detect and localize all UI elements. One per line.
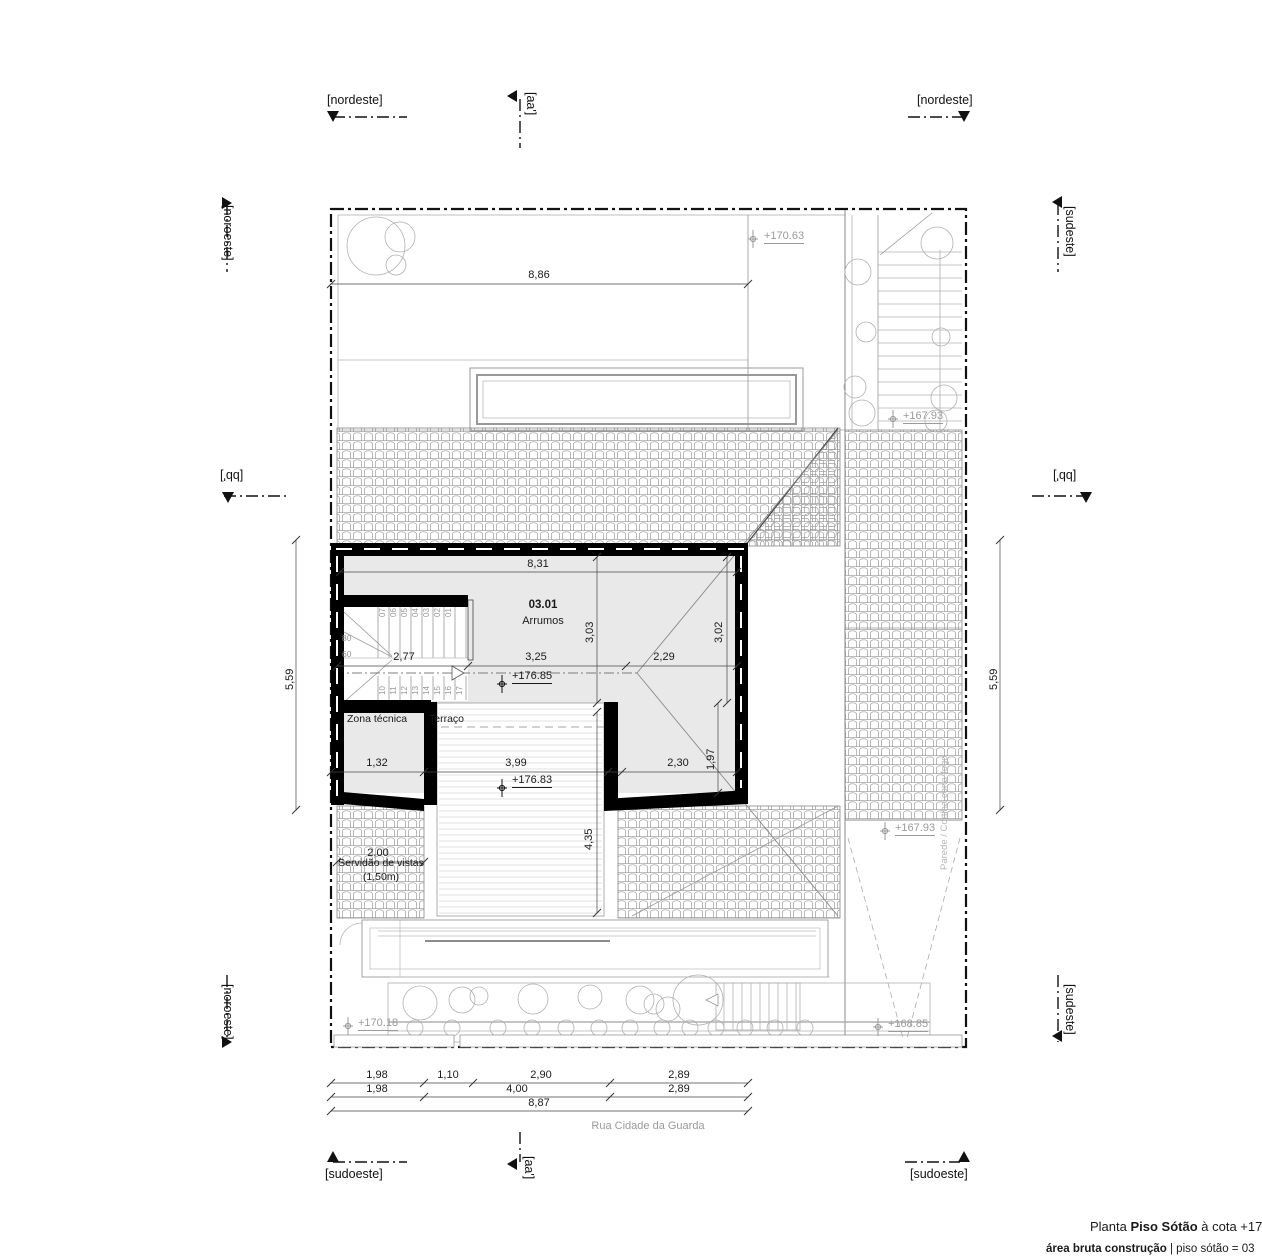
stair-number: 06 xyxy=(389,607,398,618)
street-name: Rua Cidade da Guarda xyxy=(591,1120,704,1132)
level-attic: +176.85 xyxy=(512,670,552,684)
dim-site-height-right: 5,59 xyxy=(988,669,1000,690)
dim-room-depth-left: 3,03 xyxy=(584,622,596,643)
stair-width-80: 80 xyxy=(342,634,351,643)
dim-room-depth-right: 3,02 xyxy=(713,622,725,643)
dim-row1-0: 1,98 xyxy=(366,1069,387,1081)
dim-row1-1: 1,10 xyxy=(437,1069,458,1081)
title-suffix: à cota +176.85 xyxy=(1198,1219,1262,1234)
dim-row2-2: 2,89 xyxy=(668,1083,689,1095)
marker-sudoeste-bottom-right: [sudoeste] xyxy=(910,1168,968,1182)
title-name: Piso Sótão xyxy=(1130,1219,1197,1234)
stair-number: 12 xyxy=(400,685,409,696)
title-prefix: Planta xyxy=(1090,1219,1130,1234)
title-line1: Planta Piso Sótão à cota +176.85 xyxy=(1090,1219,1262,1234)
stair-width-60: 60 xyxy=(342,650,351,659)
dim-site-width: 8,86 xyxy=(528,269,549,281)
stair-number: 11 xyxy=(389,685,398,696)
title-area-label: área bruta construção xyxy=(1046,1243,1167,1255)
room-number: 03.01 xyxy=(529,599,558,612)
floor-plan-page: [nordeste] [aa'] [nordeste] [noroeste] [… xyxy=(0,0,1262,1256)
stair-number: 17 xyxy=(455,685,464,696)
skylight xyxy=(470,368,803,431)
dim-terrace-depth: 4,35 xyxy=(583,829,595,850)
firewall-label: Parede / Cortina corta-fogo xyxy=(940,755,950,870)
level-ramp: +168.85 xyxy=(888,1018,928,1032)
dim-mid-right: 2,29 xyxy=(653,651,674,663)
dim-site-height-left: 5,59 xyxy=(284,669,296,690)
level-garden-top: +170.63 xyxy=(764,230,804,244)
garden-top xyxy=(338,215,845,430)
level-stair-landing: +167.93 xyxy=(903,410,943,424)
stair-number: 03 xyxy=(422,607,431,618)
marker-sudoeste-bottom-left: [sudoeste] xyxy=(325,1168,383,1182)
title-line2: área bruta construção | piso sótão = 03 xyxy=(1046,1243,1255,1255)
marker-sudeste-right-bottom: [sudeste] xyxy=(1062,984,1076,1035)
marker-aa-top: [aa'] xyxy=(523,92,537,115)
room-name-zona-tecnica: Zona técnica xyxy=(347,714,407,726)
dim-terrace-width: 3,99 xyxy=(505,757,526,769)
terrace-deck xyxy=(428,703,604,916)
dim-lower-right: 2,30 xyxy=(667,757,688,769)
stair-number: 10 xyxy=(378,685,387,696)
dim-zona-width: 1,32 xyxy=(366,757,387,769)
stair-number: 15 xyxy=(433,685,442,696)
servidao-label-line1: Servidão de vistas xyxy=(338,858,424,870)
dim-row2-1: 4,00 xyxy=(506,1083,527,1095)
dim-right-depth: 1,97 xyxy=(705,749,717,770)
stair-numbers-upper: 07060504030201 xyxy=(377,608,454,617)
dim-total: 8,87 xyxy=(528,1097,549,1109)
dim-room-width: 8,31 xyxy=(527,558,548,570)
dim-stair-width: 2,77 xyxy=(393,651,414,663)
dim-row1-2: 2,90 xyxy=(530,1069,551,1081)
marker-sudeste-right-top: [sudeste] xyxy=(1062,206,1076,257)
stair-number: 04 xyxy=(411,607,420,618)
level-roof-right: +167.93 xyxy=(895,822,935,836)
dim-row2-0: 1,98 xyxy=(366,1083,387,1095)
marker-noroeste-left-top: [noroeste] xyxy=(220,205,234,261)
stair-number: 05 xyxy=(400,607,409,618)
stair-number: 13 xyxy=(411,685,420,696)
level-terrace: +176.83 xyxy=(512,774,552,788)
stair-number: 02 xyxy=(433,607,442,618)
stair-number: 01 xyxy=(444,607,453,618)
dim-mid-center: 3,25 xyxy=(525,651,546,663)
marker-bb-right: [bb'] xyxy=(1053,468,1076,482)
stair-numbers-lower: 1011121314151617 xyxy=(377,686,465,695)
marker-noroeste-left-bottom: [noroeste] xyxy=(220,984,234,1040)
servidao-label-line2: (1,50m) xyxy=(363,872,399,884)
dim-row1-3: 2,89 xyxy=(668,1069,689,1081)
marker-nordeste-top-right: [nordeste] xyxy=(917,94,973,108)
stair-number: 14 xyxy=(422,685,431,696)
marker-aa-bottom: [aa'] xyxy=(521,1156,535,1179)
room-name-terraco: Terraço xyxy=(429,714,464,726)
room-name-arrumos: Arrumos xyxy=(522,615,564,627)
floor-plan-canvas xyxy=(0,0,1262,1256)
level-street-left: +170.18 xyxy=(358,1017,398,1031)
stair-number: 07 xyxy=(378,607,387,618)
marker-nordeste-top-left: [nordeste] xyxy=(327,94,383,108)
title-area-value: | piso sótão = 03 xyxy=(1167,1243,1255,1255)
stair-number: 16 xyxy=(444,685,453,696)
marker-bb-left: [bb'] xyxy=(220,468,243,482)
